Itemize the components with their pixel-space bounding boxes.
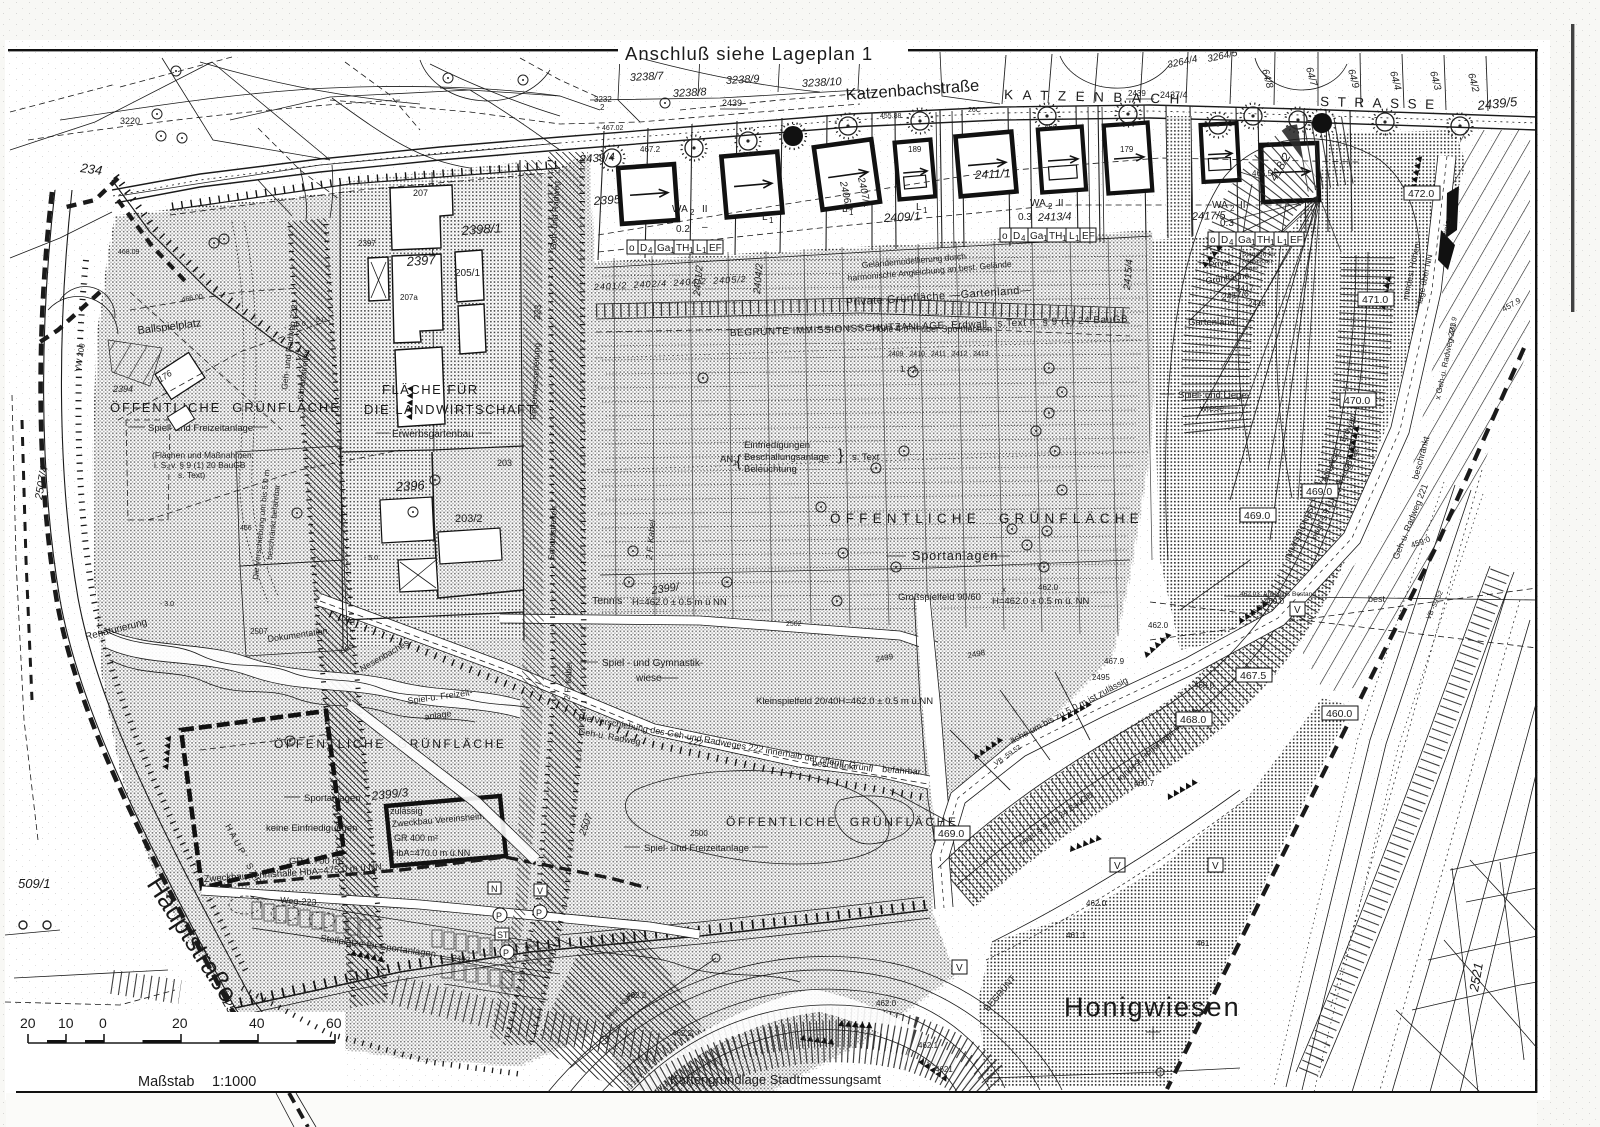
svg-text:P: P (536, 908, 542, 918)
svg-text:tainer: tainer (1242, 265, 1259, 272)
svg-text:3238/10: 3238/10 (802, 76, 843, 90)
svg-text:+ 467.02: + 467.02 (596, 125, 624, 132)
svg-text:509/1: 509/1 (18, 876, 51, 891)
svg-text:–: – (702, 222, 708, 233)
svg-text:EF: EF (709, 243, 722, 254)
svg-text:Altglascon-: Altglascon- (1242, 258, 1274, 265)
svg-text:EF: EF (1290, 235, 1303, 246)
svg-text:466: 466 (240, 525, 252, 532)
svg-text:II: II (702, 204, 708, 215)
svg-text:203/2: 203/2 (455, 513, 483, 525)
svg-text:D: D (640, 243, 647, 254)
svg-text:462.0: 462.0 (1086, 899, 1107, 908)
svg-text:3238/8: 3238/8 (673, 86, 708, 100)
svg-text:2439: 2439 (722, 98, 742, 108)
svg-text:2409 2410 2411 2412 24: 2409 2410 2411 2412 2413 (888, 351, 989, 358)
svg-text:s. Text: s. Text (852, 452, 880, 463)
svg-text:469.0: 469.0 (1306, 486, 1332, 498)
svg-text:20: 20 (20, 1015, 36, 1031)
svg-text:Erwerbsgartenbau: Erwerbsgartenbau (392, 429, 474, 440)
svg-text:1 : 1: 1 : 1 (900, 363, 918, 374)
svg-text:462.2: 462.2 (626, 991, 647, 1000)
svg-text:20: 20 (172, 1015, 188, 1031)
svg-text:best: best (1368, 594, 1386, 604)
svg-text:D: D (1221, 235, 1228, 246)
svg-text:o: o (1002, 231, 1008, 242)
svg-text:HbA=470.0 m ü.NN: HbA=470.0 m ü.NN (392, 848, 470, 858)
svg-text:462.1: 462.1 (918, 1041, 939, 1050)
svg-text:0: 0 (99, 1015, 107, 1031)
svg-text:V: V (537, 886, 543, 896)
svg-text:Ga: Ga (1030, 231, 1044, 242)
svg-text:Maßstab: Maßstab (138, 1074, 194, 1090)
svg-text:467.5: 467.5 (1240, 670, 1266, 682)
svg-text:P: P (503, 948, 509, 958)
svg-text:2502: 2502 (786, 621, 802, 628)
svg-text:179: 179 (1120, 145, 1134, 154)
svg-text:4: 4 (648, 246, 653, 255)
svg-text:2394: 2394 (112, 384, 133, 394)
svg-text:ST: ST (497, 930, 509, 940)
svg-text:3238/7: 3238/7 (630, 70, 665, 84)
svg-text:2395: 2395 (592, 192, 621, 208)
svg-text:2439/4: 2439/4 (578, 152, 615, 166)
svg-text:EF: EF (1082, 231, 1095, 242)
svg-text:10: 10 (58, 1015, 74, 1031)
svg-text:1: 1 (702, 246, 707, 255)
svg-text:Ga: Ga (657, 243, 671, 254)
svg-text:TH: TH (1257, 235, 1270, 246)
svg-text:468.09: 468.09 (118, 249, 140, 256)
svg-text:- 5.0: - 5.0 (364, 555, 378, 562)
svg-text:4: 4 (1021, 234, 1026, 243)
svg-text:2507: 2507 (250, 627, 268, 636)
svg-text:H=462.0 ± 0.5 m ü. NN: H=462.0 ± 0.5 m ü. NN (992, 596, 1089, 607)
svg-text:0.3: 0.3 (1220, 218, 1234, 229)
svg-text:460.0: 460.0 (1326, 708, 1352, 720)
svg-text:zulässig: zulässig (390, 806, 423, 816)
svg-text:2500: 2500 (690, 829, 708, 838)
svg-text:AN: AN (720, 454, 733, 465)
svg-text:2: 2 (1048, 202, 1053, 211)
svg-text:WA: WA (672, 204, 688, 215)
svg-text:Tennis: Tennis (592, 595, 622, 607)
svg-text:o: o (629, 243, 635, 254)
svg-text:WA: WA (1030, 198, 1046, 209)
svg-text:2397: 2397 (405, 252, 437, 269)
svg-text:2: 2 (1230, 204, 1235, 213)
svg-text:189: 189 (908, 145, 922, 154)
svg-text:FLÄCHE FÜR: FLÄCHE FÜR (382, 382, 479, 397)
svg-text:462.2: 462.2 (672, 1029, 693, 1038)
svg-text:(Flächen und Maßnahmen: (Flächen und Maßnahmen (152, 450, 252, 460)
svg-text:1:1000: 1:1000 (212, 1074, 256, 1090)
svg-text:TH: TH (1049, 231, 1062, 242)
svg-text:471.0: 471.0 (1362, 294, 1388, 306)
svg-text:ÖFFENTLICHE GRÜNFLÄCHE: ÖFFENTLICHE GRÜNFLÄCHE (830, 511, 1144, 526)
svg-text:P: P (496, 911, 502, 921)
svg-text:2495: 2495 (1092, 673, 1110, 682)
svg-text:II: II (1058, 198, 1064, 209)
svg-text:2437/4: 2437/4 (1160, 90, 1188, 100)
svg-text:455.88: 455.88 (880, 113, 902, 120)
svg-text:DIE LANDWIRTSCHAFT: DIE LANDWIRTSCHAFT (364, 402, 536, 417)
svg-text:Beleuchtung: Beleuchtung (744, 464, 797, 475)
svg-text:Spiel- und Freizeitanlage: Spiel- und Freizeitanlage (644, 843, 749, 854)
svg-text:4: 4 (1229, 238, 1234, 247)
svg-text:V: V (1212, 861, 1219, 872)
svg-text:234: 234 (79, 160, 104, 178)
svg-text:207: 207 (413, 188, 428, 198)
svg-text:N: N (491, 884, 498, 894)
svg-text:2413/4: 2413/4 (1037, 211, 1072, 224)
svg-text:2411/1: 2411/1 (973, 166, 1010, 182)
svg-text:TH: TH (676, 243, 689, 254)
svg-text:Sportanlagen: Sportanlagen (912, 549, 998, 563)
svg-text:462.0: 462.0 (1038, 583, 1059, 592)
svg-text:V: V (956, 963, 963, 974)
svg-text:Sportanlagen: Sportanlagen (304, 793, 361, 804)
svg-text:2439: 2439 (1128, 89, 1146, 98)
svg-text:461: 461 (1196, 939, 1210, 948)
svg-text:1: 1 (769, 216, 774, 225)
svg-text:203: 203 (497, 458, 512, 468)
svg-text:462.0: 462.0 (876, 999, 897, 1008)
svg-text:Großspielfeld 90/60: Großspielfeld 90/60 (898, 592, 981, 603)
svg-text:2409/1: 2409/1 (882, 209, 920, 225)
svg-text:ÖFFENTLICHE GRÜNFLÄCHE: ÖFFENTLICHE GRÜNFLÄCHE (110, 400, 341, 415)
svg-text:WA: WA (1212, 200, 1228, 211)
svg-text:1: 1 (923, 206, 928, 215)
svg-text:469.0: 469.0 (1244, 510, 1270, 522)
svg-text:- 3.0: - 3.0 (160, 601, 174, 608)
svg-text:H=462.0 ± 0.5 m ü NN: H=462.0 ± 0.5 m ü NN (632, 597, 727, 608)
svg-text:60: 60 (326, 1015, 342, 1031)
svg-text:207a: 207a (400, 293, 418, 302)
svg-text:5.0: 5.0 (296, 321, 306, 328)
svg-text:Standort für: Standort für (1242, 251, 1277, 258)
svg-text:Kleinspielfeld 20/40H=462.0 ±: Kleinspielfeld 20/40H=462.0 ± 0.5 m ü.NN (756, 696, 933, 707)
svg-text:Anschluß siehe Lageplan 1: Anschluß siehe Lageplan 1 (625, 43, 873, 64)
svg-text:Einfriedigungen: Einfriedigungen (744, 440, 810, 451)
svg-text:461.1: 461.1 (1066, 931, 1087, 940)
svg-text:D: D (1013, 231, 1020, 242)
svg-text:ÖFFENTLICHE GRÜNFLÄCHE: ÖFFENTLICHE GRÜNFLÄCHE (726, 815, 958, 829)
svg-text:Spiel - und Gymnastik-: Spiel - und Gymnastik- (602, 658, 703, 669)
svg-text:Honigwiesen: Honigwiesen (1064, 992, 1241, 1022)
svg-text:0.2: 0.2 (676, 224, 690, 235)
svg-text:470.0: 470.0 (1344, 395, 1370, 407)
svg-text:2 F. Kabel: 2 F. Kabel (562, 662, 574, 700)
svg-text:472.0: 472.0 (1408, 188, 1434, 200)
svg-text:1: 1 (1283, 238, 1288, 247)
svg-text:i. S. v. § 9 (1) 20 BauGB: i. S. v. § 9 (1) 20 BauGB (154, 460, 246, 470)
svg-text:467.2: 467.2 (640, 145, 661, 154)
svg-text:2418: 2418 (1248, 299, 1266, 308)
svg-text:2396: 2396 (394, 477, 425, 494)
svg-text:469.0: 469.0 (938, 828, 964, 840)
svg-text:2397: 2397 (358, 239, 376, 248)
svg-text:Gartenland: Gartenland (1188, 317, 1235, 328)
svg-text:Spiel- und Freizeitanlage: Spiel- und Freizeitanlage (148, 423, 253, 434)
svg-text:462.0: 462.0 (1148, 621, 1169, 630)
svg-text:Höhe 4.0 m über Sportflächen: Höhe 4.0 m über Sportflächen (872, 324, 992, 334)
svg-text:Spiel- und Liege-: Spiel- und Liege- (1178, 390, 1250, 401)
svg-text:Beschallungsanlage: Beschallungsanlage (744, 452, 829, 463)
svg-text:222: 222 (688, 736, 704, 748)
svg-text:468.0: 468.0 (1194, 681, 1215, 690)
svg-text:26C: 26C (968, 107, 981, 114)
svg-text:465.5: 465.5 (1252, 169, 1273, 178)
svg-text:466: 466 (1044, 123, 1058, 132)
svg-text:3238/9: 3238/9 (726, 73, 760, 87)
svg-text:L: L (762, 212, 768, 223)
svg-text:2: 2 (690, 208, 695, 217)
svg-text:o: o (1210, 235, 1216, 246)
svg-text:467.9: 467.9 (1104, 657, 1125, 666)
svg-text:wiese: wiese (1199, 403, 1224, 414)
svg-text:II: II (1240, 200, 1246, 211)
svg-text:s. Text): s. Text) (178, 470, 205, 480)
svg-text:205/1: 205/1 (455, 268, 480, 279)
svg-text:40: 40 (249, 1015, 265, 1031)
svg-text:x: x (1002, 585, 1006, 594)
svg-text:{: { (736, 453, 742, 470)
svg-text:468.0: 468.0 (1180, 714, 1206, 726)
svg-text:}: } (838, 447, 844, 464)
svg-text:460.7: 460.7 (1134, 779, 1155, 788)
svg-text:2417: 2417 (1236, 284, 1254, 293)
svg-text:STRASSE: STRASSE (1320, 94, 1443, 112)
svg-text:0.3: 0.3 (1018, 212, 1032, 223)
svg-text:GR 400 m²: GR 400 m² (394, 833, 438, 843)
svg-text:keine Einfriedigungen: keine Einfriedigungen (266, 823, 357, 834)
svg-text:V: V (1294, 605, 1301, 616)
svg-text:2: 2 (600, 103, 605, 112)
svg-text:2398/1: 2398/1 (460, 220, 502, 238)
svg-text:wiese: wiese (635, 673, 662, 684)
svg-text:1: 1 (1075, 234, 1080, 243)
svg-text:Ga: Ga (1238, 235, 1252, 246)
